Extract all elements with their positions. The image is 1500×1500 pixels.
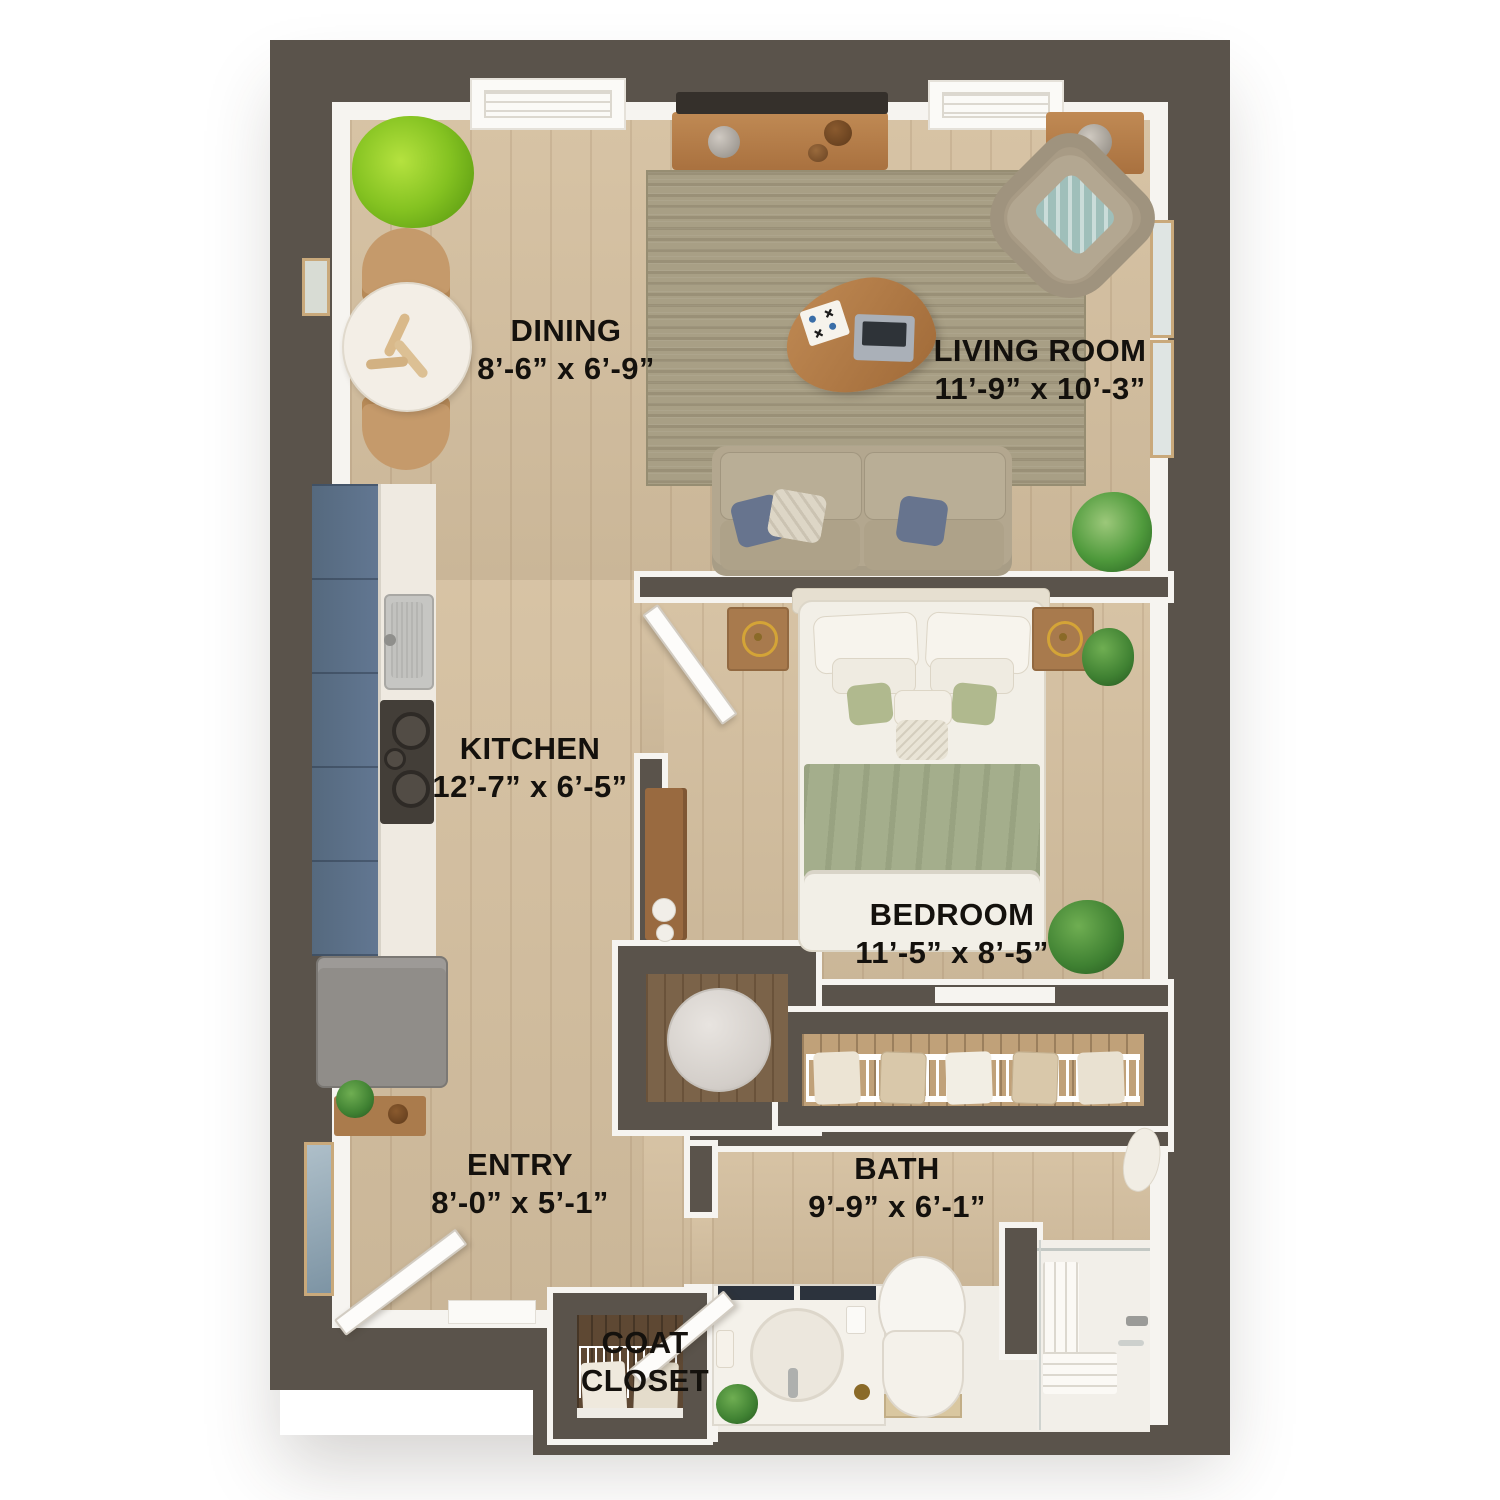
decor-bowl-small	[808, 144, 828, 162]
room-dimensions: 8’-0” x 5’-1”	[390, 1184, 650, 1222]
lamp-bulb-icon	[1059, 633, 1067, 641]
hanging-clothes	[813, 1051, 861, 1105]
game-card	[799, 299, 850, 346]
room-dimensions: 8’-6” x 6’-9”	[436, 350, 696, 388]
floor-plan-canvas: DINING 8’-6” x 6’-9” LIVING ROOM 11’-9” …	[0, 0, 1500, 1500]
wall-shower-stub	[1005, 1228, 1037, 1354]
decor-round-white	[656, 924, 674, 942]
tv-console	[672, 112, 888, 170]
vent-slats-icon	[484, 90, 612, 118]
shower-wand-icon	[1118, 1340, 1144, 1346]
faucet-handle-icon	[854, 1384, 870, 1400]
sofa	[712, 446, 1012, 576]
room-label-bedroom: BEDROOM 11’-5” x 8’-5”	[800, 896, 1104, 972]
refrigerator	[316, 956, 448, 1088]
room-label-kitchen: KITCHEN 12’-7” x 6’-5”	[400, 730, 660, 806]
entry-doormat	[448, 1300, 536, 1324]
picture-frame-entry	[304, 1142, 334, 1296]
accent-pillow-green	[950, 682, 998, 726]
lamp-bulb-icon	[754, 633, 762, 641]
decor-vase	[708, 126, 740, 158]
room-label-entry: ENTRY 8’-0” x 5’-1”	[390, 1146, 650, 1222]
hanging-clothes	[945, 1051, 993, 1105]
floor-bath-door-opening	[690, 1210, 712, 1292]
game-dot	[828, 322, 837, 331]
game-x-mark	[824, 308, 834, 318]
accent-pillow-green	[846, 682, 894, 726]
kitchen-sink	[384, 594, 434, 690]
closet-threshold	[935, 987, 1055, 1003]
ceiling-vent-left	[470, 78, 626, 130]
washer-unit	[667, 988, 771, 1092]
room-name-line1: COAT	[537, 1324, 753, 1362]
game-x-mark	[814, 328, 824, 338]
room-label-bath: BATH 9’-9” x 6’-1”	[767, 1150, 1027, 1226]
sofa-pillow-white	[766, 488, 828, 545]
plant-living	[1072, 492, 1152, 572]
room-name: BATH	[767, 1150, 1027, 1188]
table-centerpiece-wheat	[366, 356, 409, 370]
picture-frame-living-1	[1150, 220, 1174, 338]
room-name: ENTRY	[390, 1146, 650, 1184]
wall-right	[1168, 102, 1230, 1455]
room-dimensions: 11’-5” x 8’-5”	[800, 934, 1104, 972]
shower-head-icon	[1126, 1316, 1148, 1326]
coat-closet-floor	[577, 1408, 683, 1418]
room-label-dining: DINING 8’-6” x 6’-9”	[436, 312, 696, 388]
kitchen-cabinets	[312, 484, 378, 956]
plant-nightstand	[1082, 628, 1134, 686]
toilet-seat	[882, 1330, 964, 1418]
decor-entry-bowl	[388, 1104, 408, 1124]
shower-glass	[1039, 1240, 1041, 1430]
wall-bath-left-upper	[690, 1146, 712, 1212]
hanging-clothes	[1077, 1051, 1125, 1105]
room-name: LIVING ROOM	[890, 332, 1190, 370]
game-dot	[808, 315, 817, 324]
sofa-pillow-blue	[895, 495, 949, 547]
vanity-shelf-dark	[800, 1286, 876, 1300]
shower-glass	[1037, 1248, 1150, 1251]
wall-bottom-entry	[270, 1326, 563, 1390]
room-label-living: LIVING ROOM 11’-9” x 10’-3”	[890, 332, 1190, 408]
tv-screen	[676, 92, 888, 114]
room-label-coat-closet: COAT CLOSET	[537, 1324, 753, 1400]
vent-slats-icon	[942, 92, 1050, 118]
room-dimensions: 12’-7” x 6’-5”	[400, 768, 660, 806]
decor-round-white	[652, 898, 676, 922]
plant-dining	[352, 116, 474, 228]
plant-entry	[336, 1080, 374, 1118]
room-name: DINING	[436, 312, 696, 350]
toilet-paper-holder	[846, 1306, 866, 1334]
faucet-icon	[788, 1368, 798, 1398]
room-name: BEDROOM	[800, 896, 1104, 934]
bed-blanket-green	[804, 764, 1040, 879]
nightstand-left	[727, 607, 789, 671]
shower-bench-foot	[1043, 1352, 1117, 1394]
faucet-icon	[384, 634, 396, 646]
picture-frame-dining	[302, 258, 330, 316]
room-name-line2: CLOSET	[537, 1362, 753, 1400]
lumbar-pillow	[896, 720, 948, 760]
room-name: KITCHEN	[400, 730, 660, 768]
ceiling-vent-right	[928, 80, 1064, 130]
room-dimensions: 9’-9” x 6’-1”	[767, 1188, 1027, 1226]
decor-bowl	[824, 120, 852, 146]
hanging-clothes	[1011, 1051, 1059, 1105]
room-dimensions: 11’-9” x 10’-3”	[890, 370, 1190, 408]
hanging-clothes	[879, 1051, 927, 1105]
